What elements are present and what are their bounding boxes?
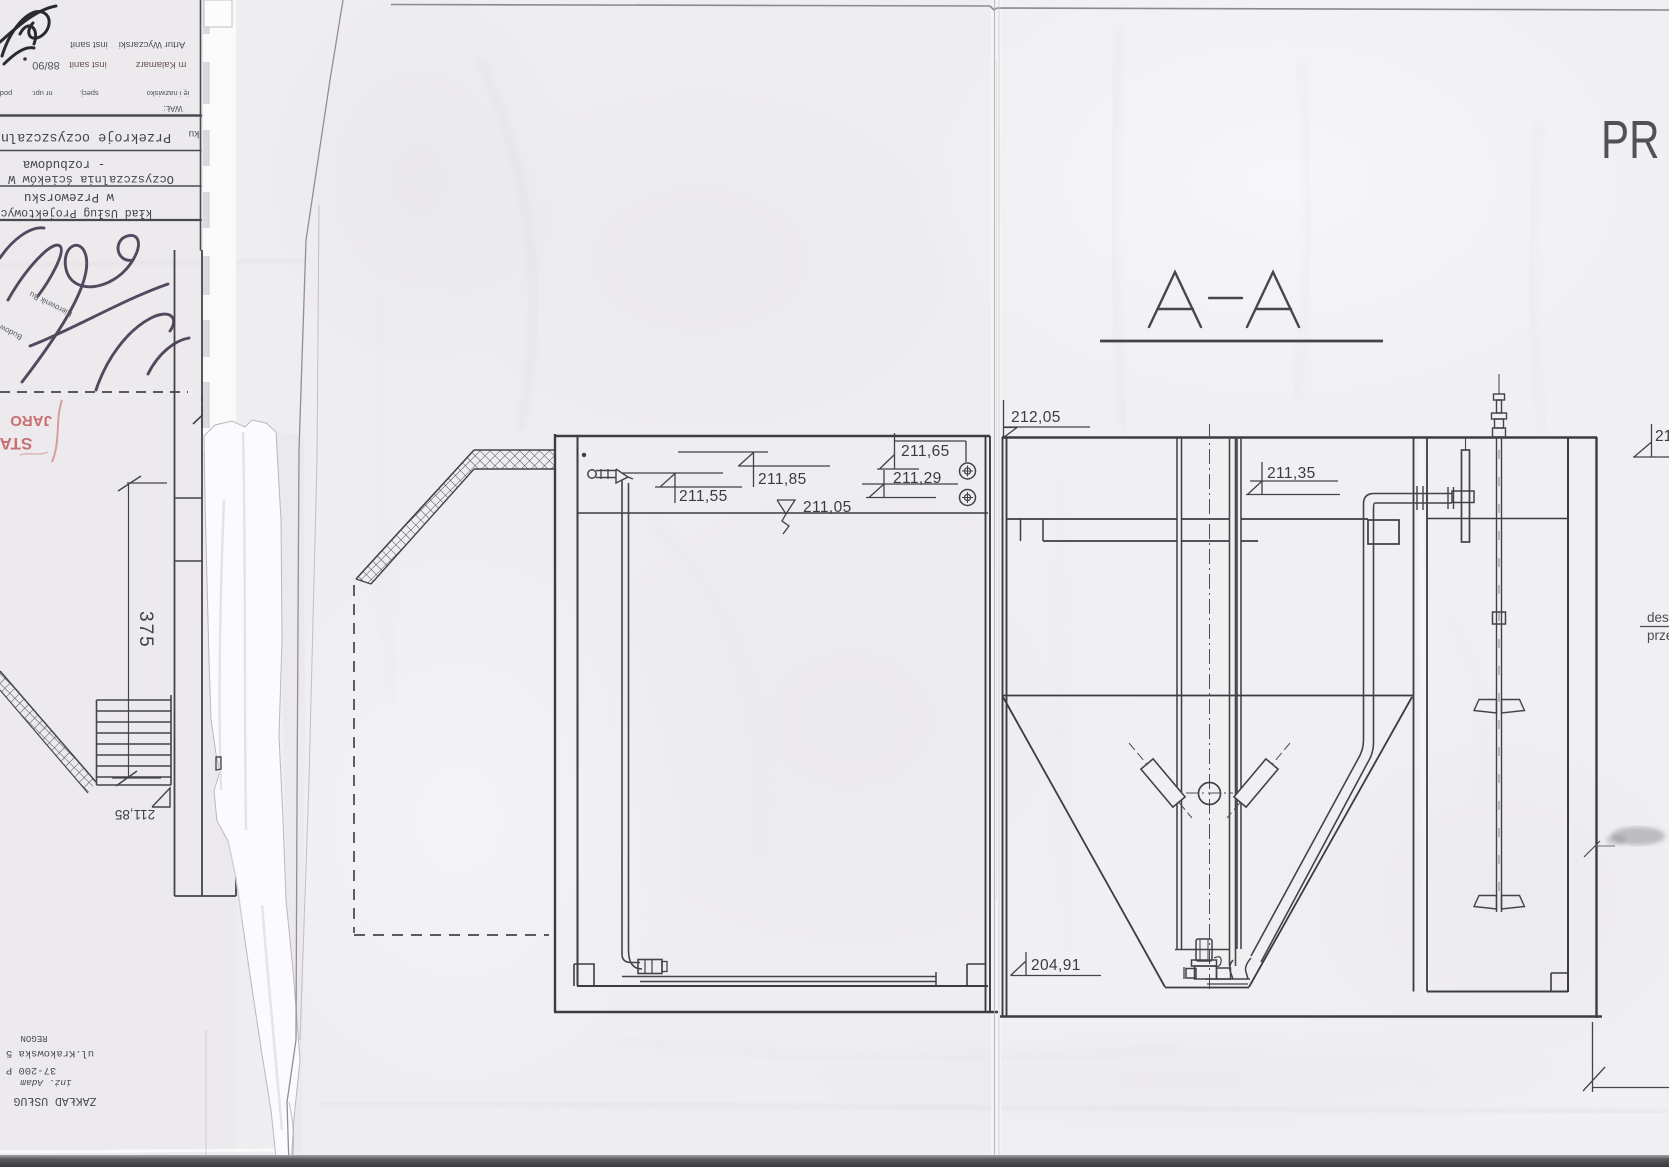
svg-text:STA: STA (0, 434, 32, 453)
svg-text:ię i nazwisko: ię i nazwisko (147, 89, 190, 98)
svg-text:JARO: JARO (10, 412, 52, 429)
svg-text:212,05: 212,05 (1011, 409, 1061, 426)
svg-text:204,91: 204,91 (1031, 957, 1081, 974)
svg-text:m Kalamarz: m Kalamarz (135, 59, 186, 70)
svg-text:Przekroje oczyszczaln: Przekroje oczyszczaln (1, 129, 171, 144)
svg-text:desz: desz (1647, 610, 1669, 625)
svg-text:ku: ku (189, 128, 200, 139)
svg-text:88/90: 88/90 (32, 59, 60, 71)
svg-text:inst sanit: inst sanit (70, 39, 108, 50)
svg-text:inst sanit: inst sanit (69, 59, 107, 70)
svg-text:ZAKŁAD USŁUG: ZAKŁAD USŁUG (14, 1094, 97, 1107)
svg-text:211,85: 211,85 (758, 471, 807, 488)
svg-text:211,65: 211,65 (901, 443, 950, 460)
svg-text:211,05: 211,05 (803, 499, 852, 516)
svg-text:211,35: 211,35 (1267, 465, 1316, 482)
svg-text:211,: 211, (1655, 428, 1669, 445)
svg-text:Artur Wyczarski: Artur Wyczarski (119, 39, 185, 50)
svg-text:211,29: 211,29 (893, 470, 942, 487)
svg-text:nr upr.: nr upr. (31, 89, 52, 98)
svg-text:PR: PR (1601, 110, 1659, 170)
svg-text:inż. Adam: inż. Adam (20, 1077, 72, 1088)
svg-text:w Przeworsku: w Przeworsku (24, 190, 114, 204)
svg-text:Oczyszczalnia ścieków W: Oczyszczalnia ścieków W (7, 172, 173, 186)
svg-text:prze: prze (1647, 628, 1669, 643)
svg-text:211,55: 211,55 (679, 488, 728, 505)
svg-text:pod: pod (0, 89, 12, 98)
svg-text:375: 375 (135, 611, 156, 649)
svg-text:WAŁ:: WAŁ: (163, 104, 182, 113)
svg-text:specj.: specj. (79, 89, 99, 98)
svg-text:- rozbudowa: - rozbudowa (22, 157, 105, 171)
svg-text:ul.Krakowska 5: ul.Krakowska 5 (6, 1047, 94, 1059)
svg-text:REGON: REGON (20, 1033, 47, 1043)
svg-text:37-200 P: 37-200 P (6, 1064, 56, 1076)
svg-text:kład Usług Projektowych: kład Usług Projektowych (0, 206, 152, 219)
svg-text:211,85: 211,85 (115, 807, 155, 822)
